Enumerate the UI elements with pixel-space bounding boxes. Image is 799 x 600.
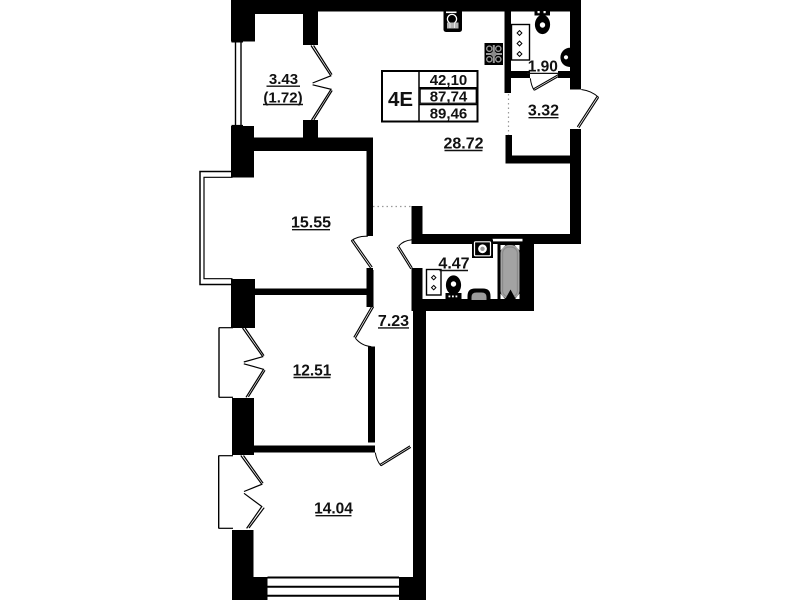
svg-text:12.51: 12.51 (293, 362, 332, 379)
svg-text:42,10: 42,10 (430, 72, 468, 89)
svg-text:14.04: 14.04 (314, 501, 353, 518)
svg-text:4E: 4E (388, 88, 413, 111)
svg-text:89,46: 89,46 (430, 105, 468, 122)
svg-text:15.55: 15.55 (291, 215, 331, 232)
svg-text:87,74: 87,74 (430, 89, 468, 106)
svg-text:28.72: 28.72 (443, 135, 483, 152)
svg-text:3.43: 3.43 (269, 71, 298, 88)
svg-text:(1.72): (1.72) (263, 89, 302, 106)
svg-text:3.32: 3.32 (528, 103, 559, 120)
svg-text:4.47: 4.47 (438, 255, 469, 272)
